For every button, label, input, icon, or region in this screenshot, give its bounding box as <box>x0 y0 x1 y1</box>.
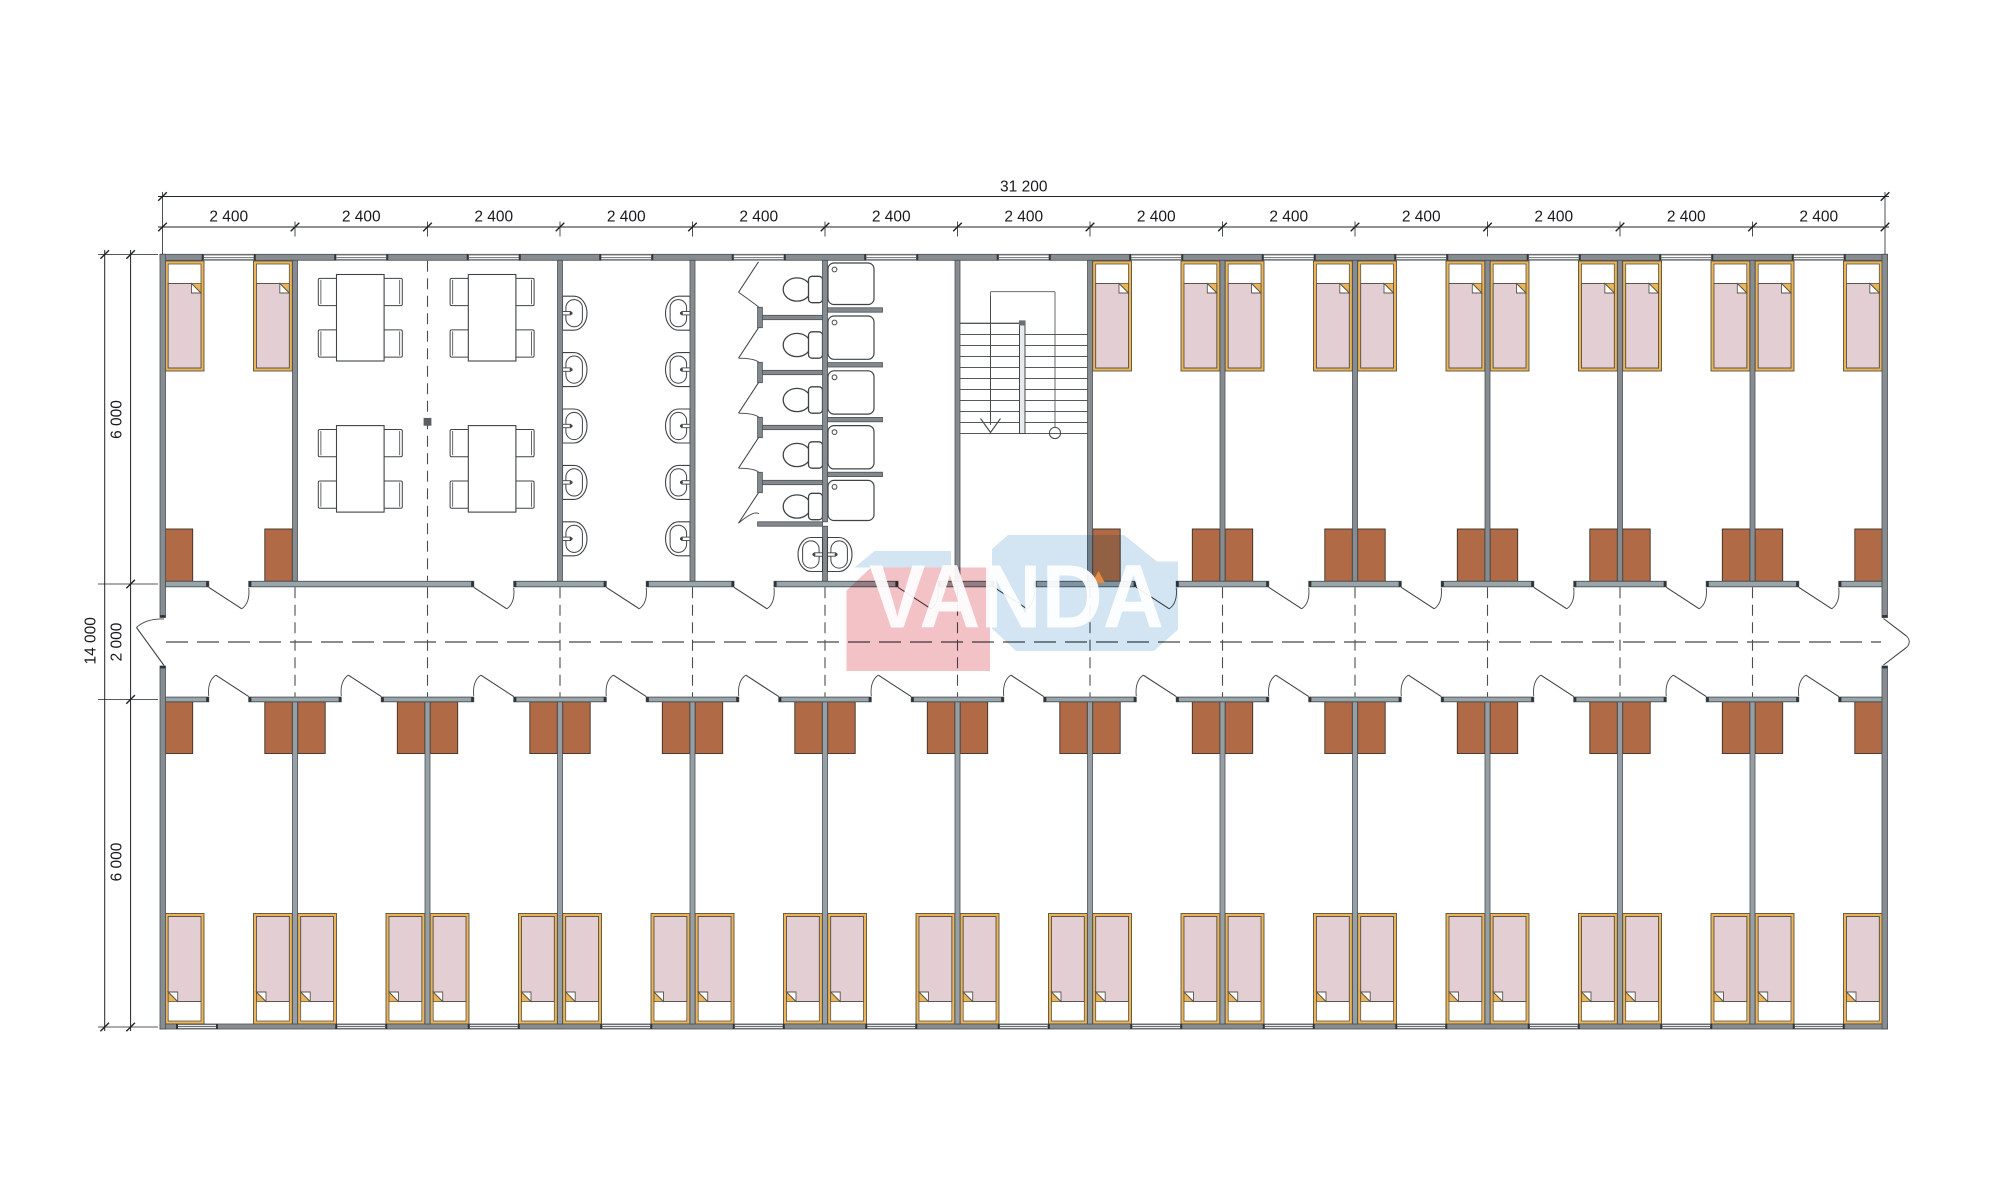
svg-text:2 400: 2 400 <box>872 209 911 226</box>
svg-text:2 400: 2 400 <box>1534 209 1573 226</box>
svg-text:2 400: 2 400 <box>1799 209 1838 226</box>
svg-text:6 000: 6 000 <box>109 842 126 881</box>
svg-text:2 400: 2 400 <box>209 209 248 226</box>
svg-text:2 400: 2 400 <box>1667 209 1706 226</box>
svg-text:14 000: 14 000 <box>83 617 100 665</box>
svg-text:2 400: 2 400 <box>1402 209 1441 226</box>
svg-text:VANDA: VANDA <box>869 548 1164 648</box>
svg-text:2 400: 2 400 <box>1137 209 1176 226</box>
svg-text:2 400: 2 400 <box>474 209 513 226</box>
svg-text:2 400: 2 400 <box>739 209 778 226</box>
svg-text:2 400: 2 400 <box>607 209 646 226</box>
svg-text:2 000: 2 000 <box>109 622 126 661</box>
svg-text:2 400: 2 400 <box>1269 209 1308 226</box>
svg-text:2 400: 2 400 <box>1004 209 1043 226</box>
svg-text:6 000: 6 000 <box>109 400 126 439</box>
svg-text:31 200: 31 200 <box>1000 179 1048 196</box>
svg-text:2 400: 2 400 <box>342 209 381 226</box>
